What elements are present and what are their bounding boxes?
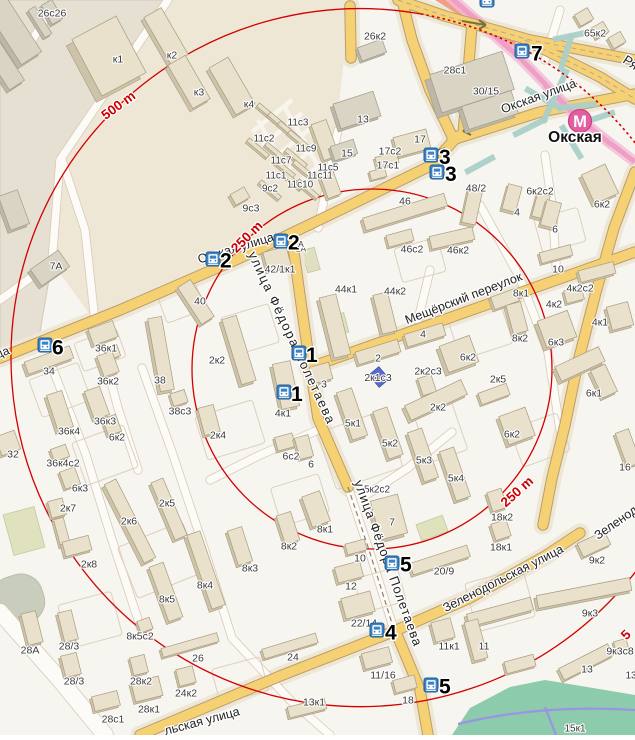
svg-text:8к1: 8к1 (317, 524, 333, 536)
svg-text:28к1: 28к1 (138, 704, 160, 716)
svg-text:11к1: 11к1 (438, 641, 459, 653)
svg-text:8к2: 8к2 (512, 333, 528, 345)
svg-text:5к3: 5к3 (416, 455, 432, 467)
svg-text:5к2: 5к2 (382, 438, 398, 450)
svg-text:34: 34 (43, 366, 55, 378)
svg-text:2к6: 2к6 (121, 516, 137, 528)
svg-text:Окская: Окская (548, 129, 602, 146)
svg-text:46: 46 (399, 196, 411, 208)
svg-text:6к2с2: 6к2с2 (526, 186, 554, 198)
svg-text:20/9: 20/9 (434, 566, 455, 578)
svg-text:17с2: 17с2 (379, 146, 402, 158)
svg-text:9с2: 9с2 (262, 184, 279, 195)
svg-text:38с3: 38с3 (169, 406, 192, 418)
svg-text:15: 15 (341, 148, 353, 160)
svg-text:5к4: 5к4 (448, 473, 464, 485)
svg-text:11с3: 11с3 (288, 118, 309, 129)
svg-text:1: 1 (291, 383, 303, 406)
svg-text:28с1: 28с1 (102, 714, 125, 726)
svg-text:9к3с8: 9к3с8 (606, 646, 634, 658)
svg-text:44к2: 44к2 (384, 286, 406, 298)
svg-text:2к2: 2к2 (209, 355, 225, 367)
svg-text:4: 4 (514, 207, 520, 219)
svg-text:4: 4 (420, 329, 426, 341)
svg-text:к3: к3 (194, 87, 205, 99)
svg-text:11: 11 (479, 641, 490, 653)
svg-text:2к4: 2к4 (210, 430, 226, 442)
svg-text:2к5: 2к5 (490, 374, 506, 386)
svg-text:к1: к1 (113, 54, 124, 66)
svg-text:4к2: 4к2 (546, 299, 562, 311)
svg-text:2к5: 2к5 (159, 498, 175, 510)
svg-text:11с7: 11с7 (271, 156, 292, 167)
svg-text:28с1: 28с1 (444, 65, 467, 77)
svg-text:36к2: 36к2 (97, 376, 119, 388)
svg-text:6к2: 6к2 (594, 199, 610, 211)
svg-text:18к2: 18к2 (491, 512, 513, 524)
svg-text:6к1: 6к1 (586, 388, 602, 400)
svg-text:к4: к4 (244, 99, 255, 111)
svg-text:8к2: 8к2 (281, 541, 297, 553)
svg-text:13к1: 13к1 (303, 697, 325, 709)
svg-text:6: 6 (552, 224, 558, 236)
svg-text:8к5с2: 8к5с2 (126, 631, 154, 643)
svg-text:2к7: 2к7 (60, 503, 76, 515)
svg-text:2к8: 2к8 (81, 559, 97, 571)
svg-text:30/15: 30/15 (473, 86, 499, 98)
svg-text:1: 1 (306, 344, 318, 367)
svg-text:46к2: 46к2 (447, 245, 469, 257)
svg-text:16: 16 (619, 462, 631, 474)
svg-text:40: 40 (194, 296, 206, 308)
svg-text:4к1: 4к1 (592, 317, 608, 329)
svg-text:4к1: 4к1 (275, 408, 291, 420)
svg-text:7: 7 (531, 43, 543, 66)
svg-text:9к3: 9к3 (582, 608, 598, 620)
svg-text:9к2: 9к2 (589, 555, 605, 567)
svg-text:8к4: 8к4 (197, 580, 213, 592)
svg-text:26с26: 26с26 (38, 8, 67, 20)
svg-text:17с1: 17с1 (377, 160, 400, 172)
svg-text:6к3: 6к3 (72, 483, 88, 495)
svg-text:9с3: 9с3 (243, 203, 260, 215)
svg-text:8к3: 8к3 (242, 563, 258, 575)
svg-text:18к1: 18к1 (490, 542, 512, 554)
svg-text:26к2: 26к2 (364, 31, 386, 43)
svg-text:5: 5 (439, 676, 451, 699)
svg-text:10: 10 (552, 264, 564, 276)
svg-text:8к1: 8к1 (513, 288, 529, 300)
svg-text:36к4с2: 36к4с2 (46, 458, 79, 470)
svg-text:3: 3 (445, 163, 457, 186)
svg-text:7А: 7А (50, 261, 63, 273)
svg-text:17: 17 (414, 134, 426, 146)
svg-text:11с1: 11с1 (266, 171, 287, 182)
svg-text:24: 24 (287, 652, 299, 664)
svg-text:2к2с3: 2к2с3 (414, 366, 442, 378)
svg-text:7: 7 (389, 517, 395, 529)
svg-text:26: 26 (192, 653, 204, 665)
svg-text:А: А (298, 239, 304, 249)
svg-text:13: 13 (581, 664, 593, 676)
svg-text:13: 13 (357, 114, 369, 126)
svg-text:4к2с2: 4к2с2 (566, 283, 594, 295)
svg-text:6к2: 6к2 (504, 429, 520, 441)
svg-text:2к1с3: 2к1с3 (364, 372, 392, 384)
svg-text:18: 18 (402, 695, 414, 707)
svg-text:5: 5 (400, 554, 412, 577)
svg-text:65к2: 65к2 (584, 28, 606, 40)
svg-text:28к2: 28к2 (130, 676, 152, 688)
svg-text:36к3: 36к3 (94, 416, 116, 428)
svg-text:10: 10 (354, 553, 366, 565)
svg-text:36к4: 36к4 (58, 426, 80, 438)
svg-text:6с2: 6с2 (283, 451, 300, 463)
svg-text:5к1: 5к1 (345, 418, 361, 430)
svg-text:32: 32 (7, 449, 19, 461)
svg-text:36к1: 36к1 (95, 343, 117, 355)
svg-text:38: 38 (154, 375, 166, 387)
svg-text:28/3: 28/3 (59, 641, 80, 653)
svg-text:2: 2 (375, 353, 381, 365)
svg-text:к2: к2 (167, 50, 178, 62)
svg-text:11с9: 11с9 (296, 144, 317, 155)
svg-text:2к2: 2к2 (430, 402, 446, 414)
svg-text:11с2: 11с2 (254, 134, 275, 145)
svg-text:6к3: 6к3 (548, 337, 564, 349)
svg-text:46с2: 46с2 (401, 244, 424, 256)
svg-text:11/16: 11/16 (370, 670, 396, 682)
svg-text:12: 12 (345, 581, 357, 593)
svg-text:13: 13 (625, 671, 635, 682)
svg-text:11с10: 11с10 (287, 180, 314, 191)
svg-text:2: 2 (220, 250, 232, 273)
svg-text:4: 4 (385, 622, 397, 645)
svg-text:6к2: 6к2 (460, 352, 476, 364)
svg-text:8к5: 8к5 (159, 594, 175, 606)
svg-text:24к2: 24к2 (175, 688, 197, 700)
svg-text:6: 6 (308, 459, 314, 471)
svg-text:28/3: 28/3 (64, 676, 85, 688)
svg-text:28А: 28А (21, 645, 40, 657)
svg-text:15к1: 15к1 (564, 724, 585, 735)
svg-text:48/2: 48/2 (466, 183, 487, 195)
svg-text:6: 6 (52, 337, 64, 360)
svg-text:6к2: 6к2 (109, 432, 125, 444)
svg-text:44к1: 44к1 (335, 284, 357, 296)
